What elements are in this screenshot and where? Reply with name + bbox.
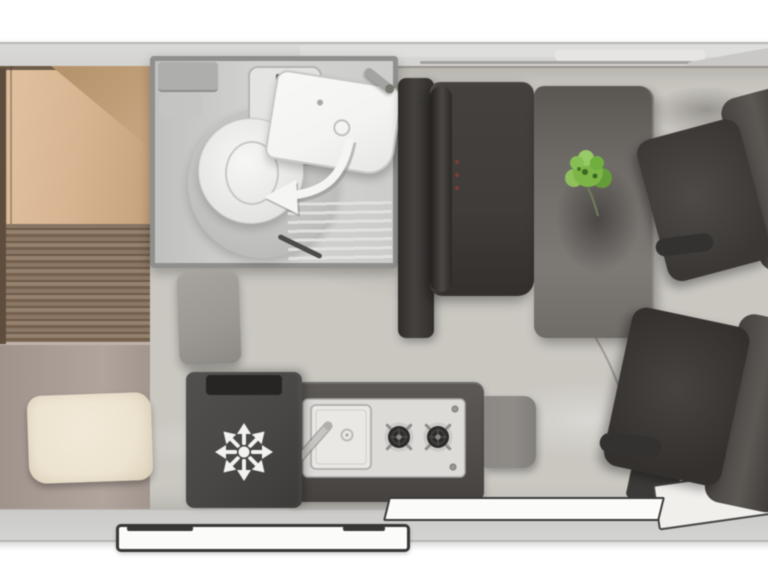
worktop-extension-flap [484, 396, 536, 468]
canvas [0, 0, 768, 576]
pillow [27, 392, 154, 484]
swivel-arrow-icon [150, 56, 398, 268]
wall-trim-line [420, 61, 700, 64]
bathroom [150, 56, 398, 268]
sliding-door-rail [116, 524, 410, 552]
belt-anchor [455, 160, 459, 164]
hob-and-sink-panel [302, 398, 466, 478]
belt-anchor [455, 186, 459, 190]
tall-cabinet [398, 78, 434, 338]
fridge [186, 372, 302, 508]
plant-icon [554, 148, 622, 224]
rail-tab [343, 526, 385, 531]
stool-cushion [176, 271, 241, 365]
van-floorplan [0, 0, 768, 576]
rear-bed [0, 66, 150, 506]
fridge-vent [206, 375, 282, 395]
bench-seat [430, 82, 534, 296]
bed-frame-edge [0, 68, 6, 344]
wall-trim-light [555, 50, 705, 61]
bed-wood-slats [0, 224, 150, 342]
belt-anchor [455, 173, 459, 177]
rail-tab [127, 526, 193, 531]
entry-sill [383, 497, 665, 521]
bench-backrest-roll [430, 86, 452, 292]
snowflake-icon [212, 420, 276, 484]
